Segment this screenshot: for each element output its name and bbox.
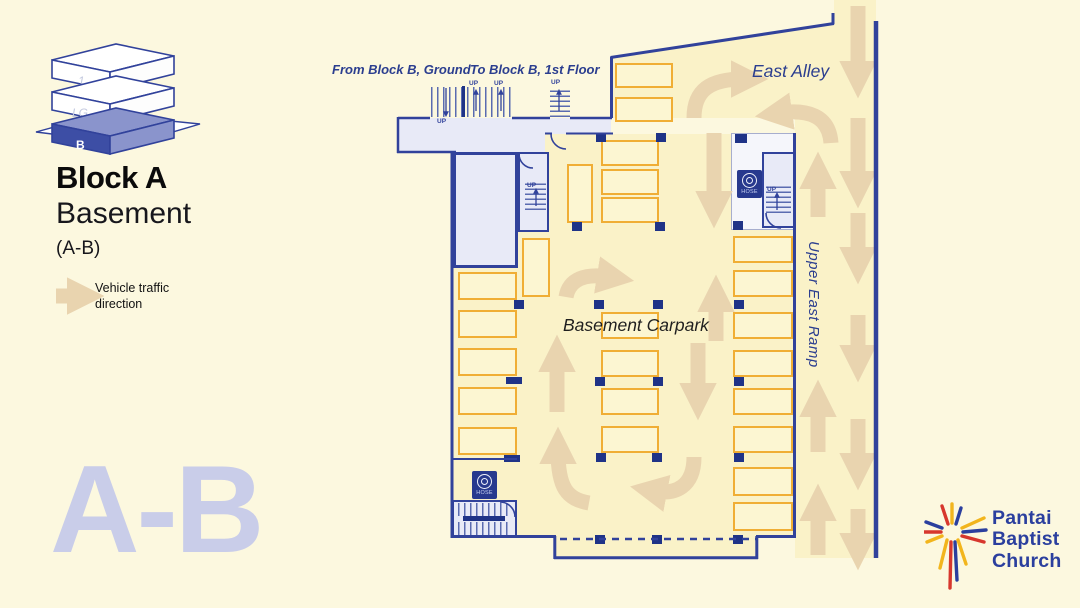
page-title-block: Block A <box>56 160 167 196</box>
label-to-block-b: To Block B, 1st Floor <box>470 62 600 77</box>
page-title-code: (A-B) <box>56 238 100 260</box>
door-arc <box>766 213 781 228</box>
page-title-level: Basement <box>56 197 191 231</box>
door-arc <box>519 154 533 168</box>
legend-vehicle-traffic: Vehicle traffic direction <box>95 281 169 312</box>
watermark-section-code: A-B <box>50 448 261 572</box>
slide-canvas: HOSEHOSEUPUPUPUPUPUP From Block B, Groun… <box>0 0 1080 608</box>
label-from-block-b: From Block B, Ground <box>332 62 471 77</box>
label-basement-carpark: Basement Carpark <box>563 315 709 336</box>
church-logo-cross-icon <box>924 502 988 594</box>
door-arc <box>500 502 515 517</box>
wall <box>611 24 835 58</box>
label-upper-east-ramp: Upper East Ramp <box>805 241 822 368</box>
door-arc <box>551 134 566 149</box>
level-slab-b-active: B <box>52 108 174 154</box>
level-stack-diagram: 1 LG B <box>34 36 204 158</box>
label-east-alley: East Alley <box>752 61 829 82</box>
church-logo-wordmark: Pantai Baptist Church <box>992 508 1061 572</box>
level-label-b: B <box>76 138 85 152</box>
